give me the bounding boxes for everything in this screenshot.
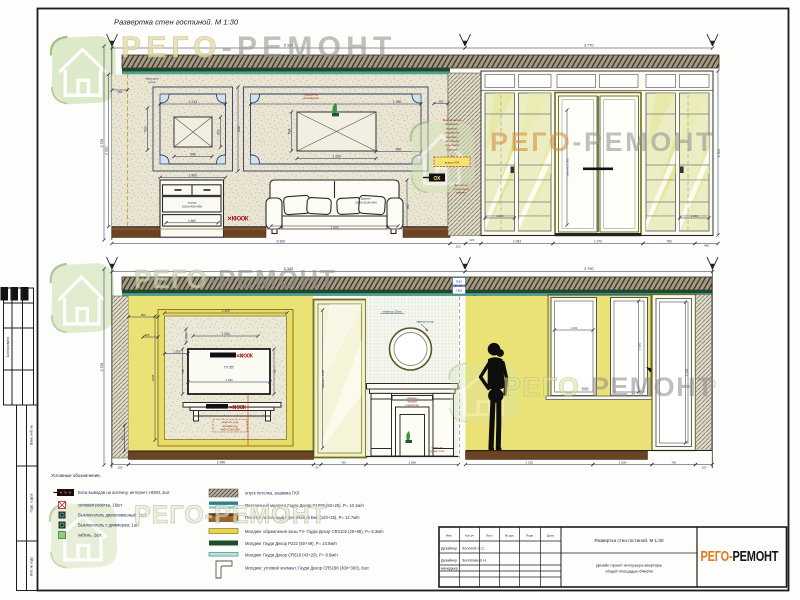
svg-text:790: 790 (666, 239, 672, 243)
svg-text:Дата: Дата (547, 534, 554, 538)
svg-text:2600×1100×950: 2600×1100×950 (355, 200, 377, 204)
svg-text:2 725: 2 725 (100, 139, 104, 148)
svg-text:1 240: 1 240 (691, 214, 698, 218)
svg-text:1 290: 1 290 (332, 154, 341, 158)
svg-text:ГВЛ: ГВЛ (456, 289, 462, 293)
svg-text:Согласовано: Согласовано (6, 337, 10, 358)
svg-text:контура: контура (447, 147, 458, 151)
svg-text:✕КЮОК: ✕КЮОК (227, 216, 249, 223)
svg-text:730: 730 (273, 369, 277, 374)
svg-text:Лист: Лист (486, 534, 493, 538)
svg-text:1 250: 1 250 (225, 378, 233, 382)
svg-text:Молдинг Гауди Декор Р222 (50+4: Молдинг Гауди Декор Р222 (50+49), P= 10.… (245, 541, 337, 546)
svg-text:Условные обозначения.: Условные обозначения. (51, 473, 101, 478)
svg-text:Выключатель с диммером, 1шт.: Выключатель с диммером, 1шт. (78, 523, 140, 528)
svg-text:2 940: 2 940 (217, 460, 225, 464)
svg-text:90: 90 (316, 466, 319, 470)
svg-text:2 500: 2 500 (717, 149, 721, 158)
svg-text:общей площадью 64м2/м: общей площадью 64м2/м (605, 569, 653, 574)
svg-text:2935: 2935 (151, 374, 155, 381)
svg-text:TV 55": TV 55" (224, 366, 235, 370)
svg-text:200: 200 (702, 466, 707, 470)
svg-text:Дизайн проект интерьера кварти: Дизайн проект интерьера квартиры (596, 563, 662, 568)
svg-text:Золотова Е.Н.: Золотова Е.Н. (462, 559, 487, 563)
svg-text:2 400: 2 400 (222, 309, 230, 313)
svg-text:460: 460 (704, 243, 709, 247)
svg-text:1 630: 1 630 (619, 460, 627, 464)
svg-text:760: 760 (341, 460, 346, 464)
svg-text:менеджер: менеджер (441, 567, 458, 571)
svg-text:1000×450×950: 1000×450×950 (182, 204, 203, 208)
svg-text:650: 650 (216, 129, 220, 135)
svg-text:штор: штор (148, 80, 155, 84)
svg-text:1 213: 1 213 (189, 100, 198, 104)
svg-text:РЕГО-РЕМОНТ: РЕГО-РЕМОНТ (490, 127, 715, 157)
svg-text:2 725: 2 725 (100, 363, 104, 372)
svg-text:223: 223 (470, 238, 475, 242)
svg-text:5 300: 5 300 (277, 239, 286, 243)
svg-text:подсветка: подсветка (405, 403, 419, 407)
svg-text:РЕГО-РЕМОНТ: РЕГО-РЕМОНТ (134, 501, 327, 529)
svg-text:вывод 438: вывод 438 (445, 161, 460, 165)
svg-text:1 660: 1 660 (188, 219, 196, 223)
svg-text:550: 550 (396, 148, 402, 152)
svg-text:камина: камина (456, 191, 466, 195)
svg-text:ПФ2: ПФ2 (456, 280, 463, 284)
svg-text:Золотой С.С.: Золотой С.С. (462, 547, 485, 551)
svg-text:для картин: для картин (303, 96, 319, 100)
svg-text:1 210: 1 210 (525, 460, 533, 464)
svg-text:520: 520 (143, 126, 147, 132)
svg-text:карниз штор: карниз штор (416, 320, 434, 324)
svg-text:ОХ: ОХ (433, 176, 441, 182)
svg-text:750: 750 (671, 460, 676, 464)
svg-text:250: 250 (185, 333, 189, 338)
svg-text:1 660: 1 660 (408, 460, 416, 464)
svg-text:РЕГО-РЕМОНТ: РЕГО-РЕМОНТ (701, 547, 779, 564)
svg-text:325: 325 (145, 333, 150, 337)
svg-text:Развертка стен гостиной. М 1:3: Развертка стен гостиной. М 1:30 (594, 537, 663, 543)
svg-text:№ док.: № док. (505, 534, 515, 538)
svg-text:✕КЮОК: ✕КЮОК (229, 405, 247, 411)
svg-text:3 790: 3 790 (584, 267, 594, 271)
svg-text:3 770: 3 770 (584, 43, 594, 47)
svg-text:Блок выводов на антенну, интер: Блок выводов на антенну, интернет, HDMI,… (78, 490, 170, 495)
svg-text:Молдинг обрамления зоны ТV- Га: Молдинг обрамления зоны ТV- Гауди Декор … (245, 529, 384, 534)
svg-text:РЕГО-РЕМОНТ: РЕГО-РЕМОНТ (134, 264, 336, 294)
svg-text:1 063: 1 063 (513, 239, 521, 243)
svg-text:1 250: 1 250 (222, 332, 230, 336)
svg-text:Изм.: Изм. (446, 534, 453, 538)
svg-text:1 555: 1 555 (173, 350, 181, 354)
svg-text:594: 594 (287, 129, 291, 135)
svg-text:Дизайнер: Дизайнер (441, 559, 457, 563)
svg-text:Развертка стен гостиной. М 1:3: Развертка стен гостиной. М 1:30 (114, 18, 239, 27)
svg-text:1 270: 1 270 (594, 239, 602, 243)
svg-text:650: 650 (439, 100, 444, 104)
svg-text:опуск потолка, зашивка ГКЛ: опуск потолка, зашивка ГКЛ (245, 491, 300, 496)
svg-text:590: 590 (190, 152, 196, 156)
svg-text:Молдинг Гауди Декор CR518 (43+: Молдинг Гауди Декор CR518 (43+29), P= 8.… (245, 553, 338, 558)
svg-text:950: 950 (406, 204, 410, 209)
svg-text:зеркало 2200: зеркало 2200 (321, 369, 325, 388)
svg-text:Молдинг, угловой элемент, Гауд: Молдинг, угловой элемент, Гауди Декор CR… (245, 566, 370, 571)
svg-text:уровне пола: уровне пола (430, 450, 445, 453)
svg-text:кабель, 2шт.: кабель, 2шт. (78, 533, 102, 538)
svg-text:силовая розетка, 16шт.: силовая розетка, 16шт. (78, 503, 123, 508)
svg-text:1 990: 1 990 (393, 100, 402, 104)
svg-text:Подп. и дата: Подп. и дата (30, 493, 34, 512)
svg-text:220: 220 (118, 466, 123, 470)
svg-text:Подп.: Подп. (526, 534, 534, 538)
svg-text:полотно 2 300: полотно 2 300 (566, 158, 570, 177)
svg-text:450: 450 (120, 435, 124, 440)
svg-text:2 320: 2 320 (104, 146, 108, 155)
svg-text:Взам. инб. №: Взам. инб. № (30, 424, 34, 444)
svg-text:РЕГО-РЕМОНТ: РЕГО-РЕМОНТ (121, 31, 397, 64)
svg-text:1 900: 1 900 (189, 173, 198, 177)
svg-text:220: 220 (456, 245, 461, 249)
svg-text:440×1200×350: 440×1200×350 (220, 428, 240, 432)
svg-text:550: 550 (141, 313, 146, 317)
svg-text:260: 260 (117, 90, 122, 94)
svg-text:Дизайнер: Дизайнер (441, 547, 457, 551)
svg-text:1 240: 1 240 (496, 214, 503, 218)
svg-text:перегор 10см: перегор 10см (383, 310, 402, 314)
svg-text:738: 738 (181, 369, 185, 374)
svg-text:РЕГО-РЕМОНТ: РЕГО-РЕМОНТ (503, 372, 715, 402)
svg-text:1 130: 1 130 (570, 326, 577, 330)
svg-text:Инб. № подл.: Инб. № подл. (30, 556, 34, 576)
svg-text:238: 238 (237, 126, 241, 132)
svg-text:Кол.уч: Кол.уч (465, 534, 474, 538)
svg-text:✕КЮОК: ✕КЮОК (236, 354, 254, 360)
svg-text:1 520: 1 520 (637, 342, 641, 350)
